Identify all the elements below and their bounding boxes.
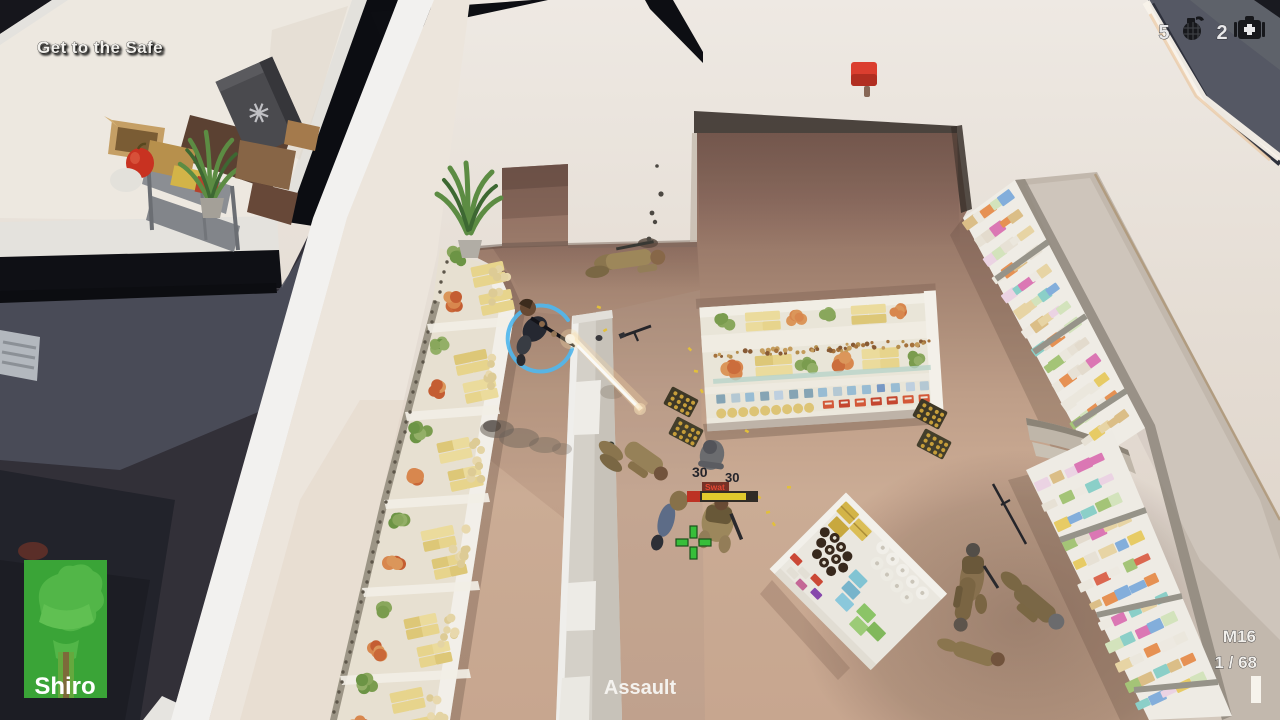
- svg-text:Assault: Assault: [604, 677, 677, 699]
- svg-text:Get to the Safe: Get to the Safe: [37, 38, 163, 57]
- svg-text:1 / 68: 1 / 68: [1214, 653, 1257, 672]
- svg-text:5: 5: [1158, 22, 1169, 44]
- svg-text:Shiro: Shiro: [34, 673, 95, 700]
- svg-text:2: 2: [1216, 22, 1227, 44]
- svg-text:M16: M16: [1223, 627, 1256, 646]
